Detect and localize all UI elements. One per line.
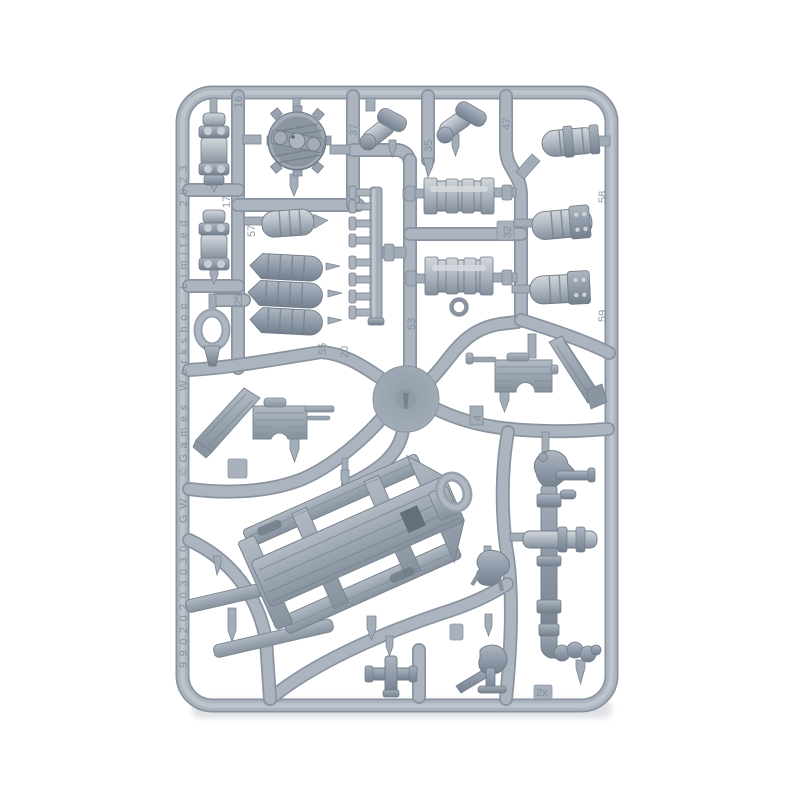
svg-text:25: 25 xyxy=(233,294,245,306)
svg-text:55: 55 xyxy=(317,343,329,355)
svg-text:58: 58 xyxy=(597,191,609,203)
svg-text:2x: 2x xyxy=(536,687,548,699)
svg-text:47: 47 xyxy=(501,118,513,130)
svg-text:20: 20 xyxy=(339,346,351,358)
svg-text:4: 4 xyxy=(472,415,484,421)
svg-text:35: 35 xyxy=(423,140,435,152)
svg-text:59: 59 xyxy=(597,310,609,322)
svg-text:16: 16 xyxy=(233,96,245,108)
svg-text:57: 57 xyxy=(246,225,258,237)
svg-text:99020203030 GW ©Games Worksh: 99020203030 GW ©Games Workshop Limited 2… xyxy=(178,160,190,668)
svg-text:32: 32 xyxy=(502,226,514,238)
svg-text:37: 37 xyxy=(348,124,360,136)
svg-text:17: 17 xyxy=(221,196,233,208)
svg-text:53: 53 xyxy=(406,318,418,330)
